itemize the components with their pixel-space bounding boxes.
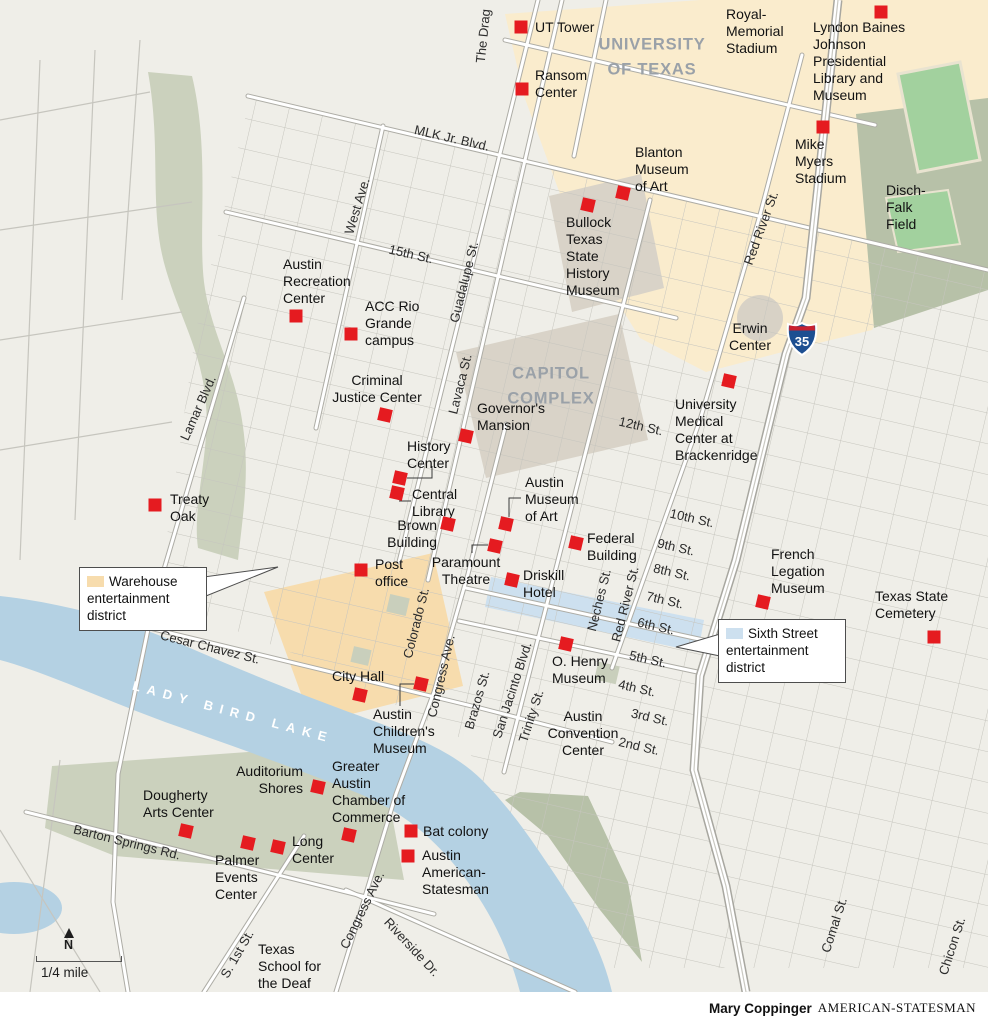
sixth-street-district-color-swatch <box>726 628 743 639</box>
scale-bar-line <box>36 956 122 962</box>
interstate-number: 35 <box>795 334 809 349</box>
north-label: N <box>64 938 73 952</box>
sixth-street-district-callout: Sixth Street entertainment district <box>718 619 846 683</box>
disch-falk-field-shape <box>886 190 960 252</box>
map-base-graphic: 35 <box>0 0 988 992</box>
scale-bar: N 1/4 mile <box>30 928 140 986</box>
credit-publication: AMERICAN-STATESMAN <box>818 1000 976 1016</box>
austin-downtown-map: 35 The DragMLK Jr. Blvd.West Ave.15th St… <box>0 0 988 1024</box>
north-arrow-icon <box>64 928 74 938</box>
warehouse-district-callout: Warehouse entertainment district <box>79 567 207 631</box>
scale-distance-label: 1/4 mile <box>41 965 88 980</box>
credit-author: Mary Coppinger <box>709 1001 812 1016</box>
map-credit: Mary Coppinger AMERICAN-STATESMAN <box>0 992 988 1024</box>
warehouse-district-color-swatch <box>87 576 104 587</box>
